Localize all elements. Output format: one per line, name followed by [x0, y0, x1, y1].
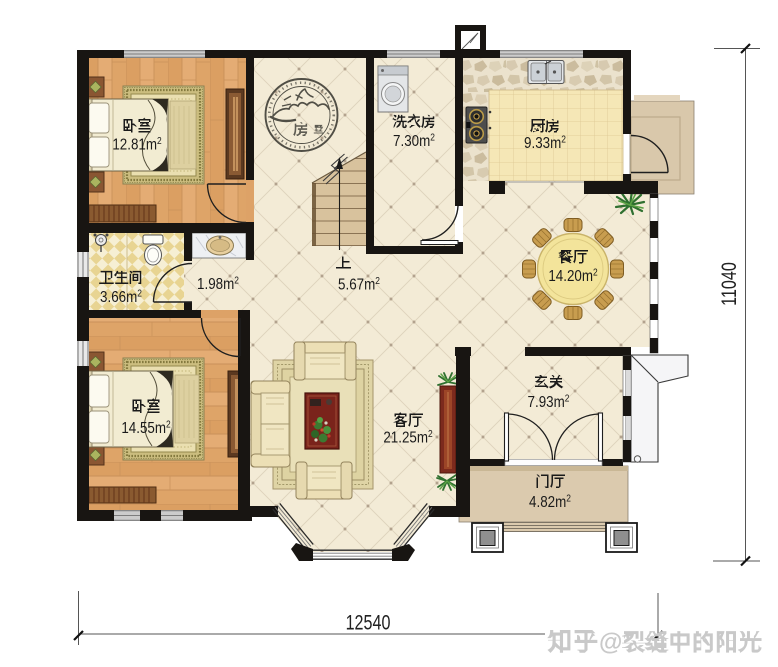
svg-text:14.20m2: 14.20m2 — [548, 267, 597, 285]
svg-text:4.82m2: 4.82m2 — [529, 493, 571, 511]
svg-text:11040: 11040 — [718, 262, 742, 306]
svg-text:12.81m2: 12.81m2 — [112, 135, 161, 153]
svg-text:21.25m2: 21.25m2 — [383, 428, 432, 446]
svg-text:7.30m2: 7.30m2 — [393, 132, 435, 150]
svg-text:1.98m2: 1.98m2 — [197, 275, 239, 293]
svg-text:7.93m2: 7.93m2 — [528, 393, 570, 411]
svg-text:9.33m2: 9.33m2 — [524, 134, 566, 152]
svg-text:5.67m2: 5.67m2 — [338, 275, 380, 293]
svg-text:@: @ — [599, 629, 622, 656]
svg-text:14.55m2: 14.55m2 — [121, 419, 170, 437]
svg-text:3.66m2: 3.66m2 — [100, 288, 142, 306]
svg-text:12540: 12540 — [346, 611, 391, 635]
